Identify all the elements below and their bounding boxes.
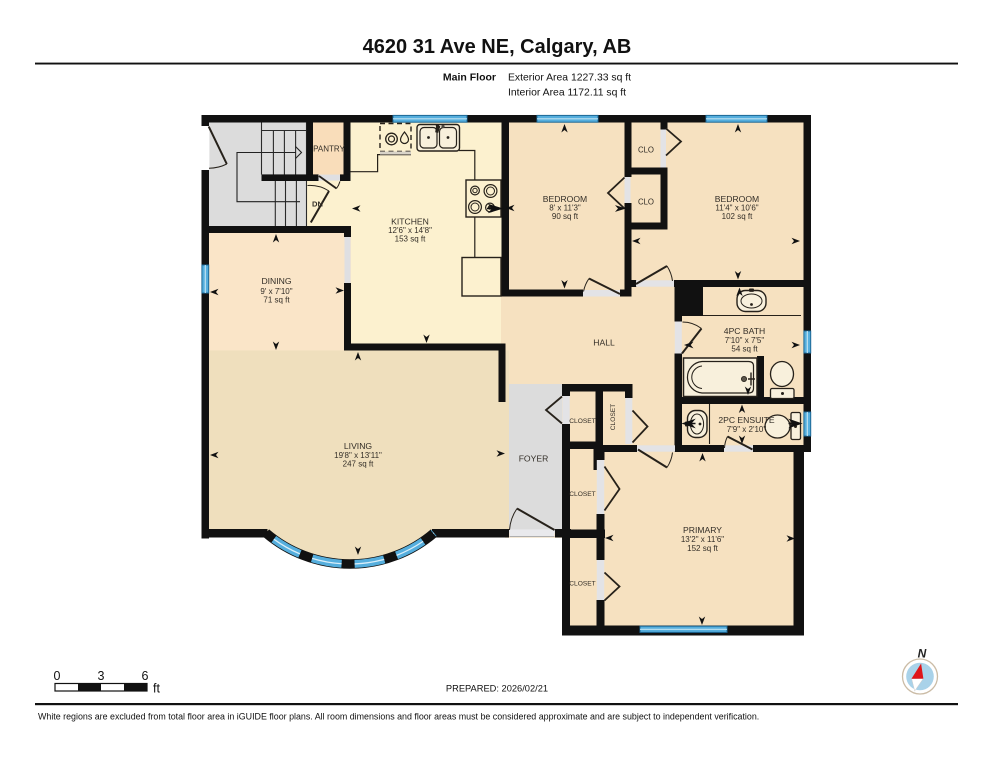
svg-text:DN: DN — [312, 200, 323, 209]
svg-text:13'2" x 11'6": 13'2" x 11'6" — [681, 535, 724, 544]
svg-text:Exterior Area 1227.33 sq ft: Exterior Area 1227.33 sq ft — [508, 73, 631, 84]
svg-text:247 sq ft: 247 sq ft — [343, 460, 374, 469]
svg-text:HALL: HALL — [593, 338, 615, 348]
svg-text:ft: ft — [153, 682, 160, 696]
svg-text:CLO: CLO — [638, 146, 654, 155]
svg-text:90 sq ft: 90 sq ft — [552, 212, 579, 221]
svg-text:Main Floor: Main Floor — [443, 72, 496, 84]
svg-text:153 sq ft: 153 sq ft — [395, 235, 426, 244]
svg-text:CLO: CLO — [638, 198, 654, 207]
svg-text:DINING: DINING — [261, 276, 291, 286]
svg-text:BEDROOM: BEDROOM — [543, 194, 587, 204]
svg-text:KITCHEN: KITCHEN — [391, 217, 429, 227]
svg-text:71 sq ft: 71 sq ft — [263, 296, 290, 305]
svg-text:N: N — [918, 647, 927, 661]
svg-text:PREPARED: 2026/02/21: PREPARED: 2026/02/21 — [446, 684, 548, 694]
svg-text:152 sq ft: 152 sq ft — [687, 544, 718, 553]
svg-text:CLOSET: CLOSET — [569, 581, 595, 588]
svg-text:FOYER: FOYER — [519, 454, 549, 464]
svg-text:Interior Area 1172.11 sq ft: Interior Area 1172.11 sq ft — [508, 88, 626, 99]
svg-text:2PC ENSUITE: 2PC ENSUITE — [718, 415, 775, 425]
svg-text:PANTRY: PANTRY — [313, 145, 345, 154]
svg-text:BEDROOM: BEDROOM — [715, 194, 759, 204]
svg-text:CLOSET: CLOSET — [610, 404, 617, 430]
svg-text:CLOSET: CLOSET — [569, 418, 595, 425]
svg-text:102 sq ft: 102 sq ft — [722, 212, 753, 221]
svg-text:4620 31 Ave NE, Calgary, AB: 4620 31 Ave NE, Calgary, AB — [363, 36, 632, 58]
svg-text:CLOSET: CLOSET — [569, 491, 595, 498]
svg-text:4PC BATH: 4PC BATH — [724, 326, 765, 336]
svg-text:0: 0 — [54, 669, 61, 683]
svg-text:6: 6 — [142, 669, 149, 683]
svg-text:White regions are excluded fro: White regions are excluded from total fl… — [38, 712, 759, 722]
svg-text:PRIMARY: PRIMARY — [683, 525, 722, 535]
svg-text:LIVING: LIVING — [344, 441, 372, 451]
svg-text:54 sq ft: 54 sq ft — [731, 345, 758, 354]
svg-text:3: 3 — [98, 669, 105, 683]
svg-text:7'9" x 2'10": 7'9" x 2'10" — [727, 425, 767, 434]
